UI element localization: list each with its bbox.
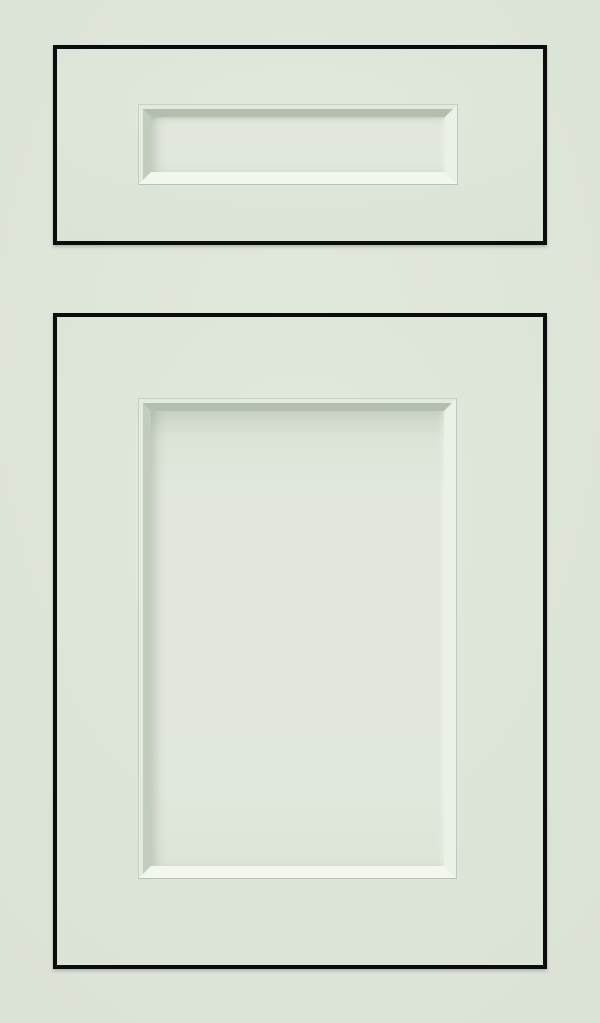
door-panel-outline bbox=[138, 398, 457, 879]
drawer-panel bbox=[151, 117, 445, 172]
door-panel-bevel bbox=[143, 403, 452, 874]
cabinet-door bbox=[53, 313, 547, 969]
cabinet-sample-photo bbox=[0, 0, 600, 1023]
door-panel bbox=[151, 411, 444, 866]
door-panel-bead bbox=[139, 399, 456, 878]
drawer-panel-bead bbox=[139, 105, 457, 184]
drawer-panel-bevel bbox=[143, 109, 453, 180]
drawer-panel-outline bbox=[138, 104, 458, 185]
drawer-front bbox=[53, 45, 547, 245]
